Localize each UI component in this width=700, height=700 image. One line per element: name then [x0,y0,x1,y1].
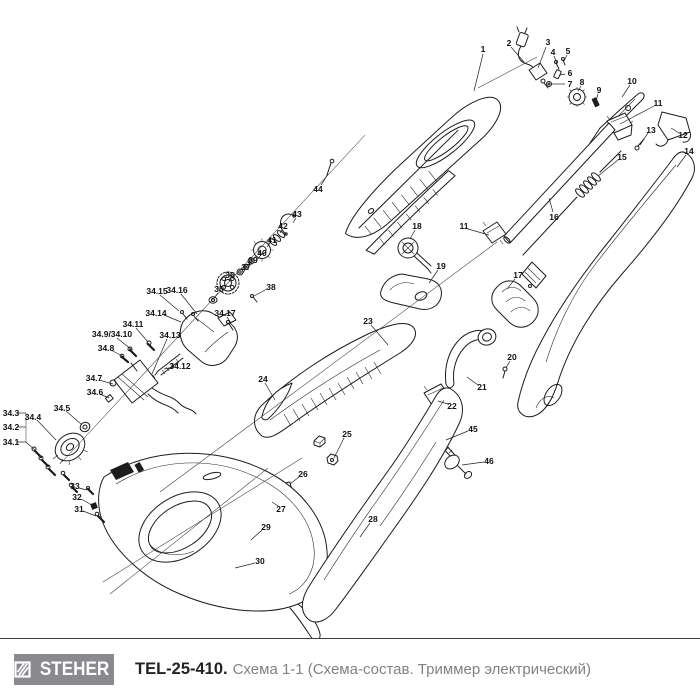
part-housing-23 [255,323,416,437]
part-clamp-11-mid [483,222,506,244]
part-washer-7 [547,82,552,87]
part-number-33: 33 [70,481,80,491]
part-number-38: 38 [266,282,276,292]
leader-line-38 [254,289,267,296]
part-number-34.9/34.10: 34.9/34.10 [92,329,132,339]
part-number-44: 44 [313,184,323,194]
brand-mark-icon [14,661,31,678]
leader-line-1 [474,54,483,91]
part-number-34.6: 34.6 [87,387,104,397]
part-number-18: 18 [412,221,422,231]
part-bracket-19 [381,274,442,309]
part-number-7: 7 [568,79,573,89]
part-number-11: 11 [654,98,663,108]
part-number-8: 8 [580,77,585,87]
part-handle-grip-21 [446,326,499,387]
part-number-14: 14 [684,146,694,156]
part-number-35: 35 [214,284,224,294]
part-shaft-tube-16 [503,123,615,244]
part-number-34.14: 34.14 [145,308,167,318]
part-number-12: 12 [678,130,688,140]
part-number-13: 13 [646,125,656,135]
caption-text: Схема 1-1 (Схема-состав. Триммер электри… [233,661,591,678]
part-knob-8 [567,87,587,107]
part-guard-shield-30 [99,453,328,638]
part-number-34.1: 34.1 [3,437,20,447]
part-number-24: 24 [258,374,268,384]
part-number-26: 26 [298,469,308,479]
part-knobbolt-46 [442,452,473,480]
part-boom-14 [518,152,695,417]
leader-line-33 [79,488,87,490]
leader-line-25 [334,438,344,458]
part-number-45: 45 [468,424,478,434]
part-number-43: 43 [292,209,302,219]
part-pin-9 [591,97,599,107]
part-number-21: 21 [477,382,487,392]
part-screws-4-5 [555,58,566,70]
leader-line-20 [506,361,510,368]
brand-name: STEHER [40,659,109,681]
part-number-42: 42 [278,221,288,231]
construction-line [478,57,537,88]
part-number-16: 16 [549,212,559,222]
part-number-28: 28 [368,514,378,524]
part-bushing-6 [553,70,561,79]
part-number-34.11: 34.11 [123,319,144,329]
part-number-34.13: 34.13 [159,330,181,340]
part-number-34.8: 34.8 [98,343,115,353]
part-number-19: 19 [436,261,446,271]
leader-line-46 [462,462,484,465]
leader-line-16 [549,198,553,212]
leader-line-18 [410,230,415,239]
leader-line-31 [83,511,96,516]
part-number-34.7: 34.7 [86,373,103,383]
part-number-34.16: 34.16 [166,285,188,295]
part-number-20: 20 [507,352,517,362]
schematic-page: 1234567891011121314151617441118192021224… [0,0,700,700]
part-number-4: 4 [551,47,556,57]
diagram-caption: TEL-25-410.Схема 1-1 (Схема-состав. Трим… [135,660,591,679]
part-number-30: 30 [255,556,265,566]
part-number-22: 22 [447,401,457,411]
part-number-34.17: 34.17 [214,308,236,318]
part-number-34.3: 34.3 [3,408,20,418]
part-number-34.12: 34.12 [169,361,191,371]
part-number-31: 31 [74,504,84,514]
part-number-34.4: 34.4 [25,412,42,422]
part-number-40: 40 [257,248,267,258]
leader-line-34.11 [136,328,148,342]
part-number-3: 3 [546,37,551,47]
part-number-29: 29 [261,522,271,532]
part-housing-lower [302,388,462,622]
leader-line-10 [622,85,630,97]
part-number-25: 25 [342,429,352,439]
leader-line-34.4 [37,420,56,440]
part-number-34.5: 34.5 [54,403,71,413]
part-number-34.2: 34.2 [3,422,20,432]
part-knob-18 [398,238,431,273]
leader-line-3 [538,47,546,68]
leader-line-15 [598,160,618,176]
part-number-5: 5 [566,46,571,56]
part-number-11: 11 [460,221,469,231]
part-number-23: 23 [363,316,373,326]
part-nut-25 [314,436,338,465]
exploded-diagram: 1234567891011121314151617441118192021224… [0,0,700,638]
part-number-46: 46 [484,456,494,466]
part-number-10: 10 [627,76,637,86]
part-power-cable [516,27,548,88]
part-number-15: 15 [617,152,627,162]
footer: STEHER TEL-25-410.Схема 1-1 (Схема-соста… [0,638,700,700]
part-number-32: 32 [72,492,82,502]
part-number-2: 2 [507,38,512,48]
part-number-36: 36 [225,270,235,280]
part-number-9: 9 [597,85,602,95]
part-number-41: 41 [267,235,277,245]
part-number-34.15: 34.15 [146,286,168,296]
leader-line-2 [511,47,524,62]
part-screw-20 [503,367,507,378]
part-fan-flange [50,420,92,466]
leader-line-34.9/34.10 [117,338,132,350]
brand-logo: STEHER [14,654,114,685]
model-number: TEL-25-410. [135,660,228,678]
part-number-6: 6 [568,68,573,78]
part-number-27: 27 [276,504,286,514]
part-number-17: 17 [513,270,523,280]
part-number-1: 1 [481,44,486,54]
